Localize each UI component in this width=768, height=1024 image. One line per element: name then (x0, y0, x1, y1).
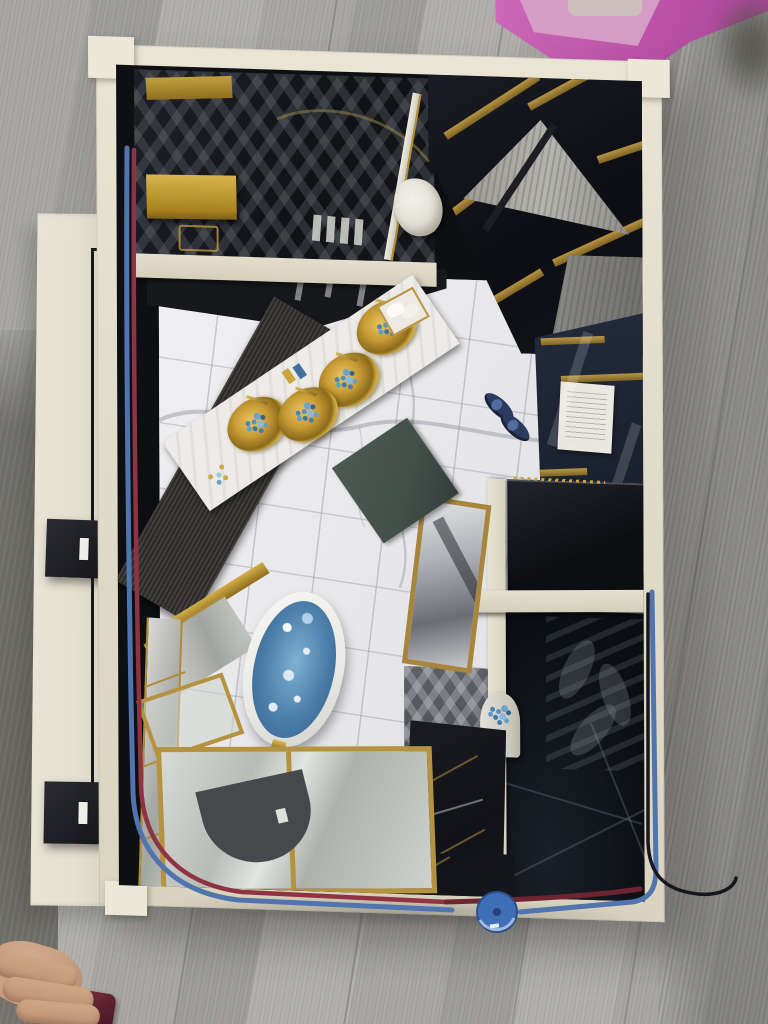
bedroom-dark-floor (504, 609, 645, 902)
blue-crystals (490, 707, 495, 712)
folder-object (568, 0, 642, 16)
gold-stripe (539, 468, 587, 477)
gold-shelf (146, 76, 233, 100)
blue-crystals (376, 323, 383, 330)
gold-stripe (597, 138, 645, 164)
gold-chair-outline (179, 225, 219, 252)
blue-crystals (295, 410, 302, 417)
floor-line (513, 809, 645, 877)
shower-reflection (195, 769, 322, 873)
photo-scene (0, 0, 768, 1024)
transformer-label (78, 802, 87, 824)
dressing-counter (507, 479, 644, 598)
transformer-label (79, 538, 89, 560)
gold-faucet (295, 387, 317, 397)
gold-faucet (246, 395, 268, 405)
jewelry-pieces (207, 473, 214, 480)
leaf-wall-reflection (546, 616, 645, 771)
floor-right-shading (658, 0, 768, 1024)
perfume-bottles (281, 368, 296, 384)
gold-stripe (541, 336, 605, 345)
frame-corner-post (105, 881, 147, 916)
gold-stripe (443, 73, 540, 140)
gold-stripe (527, 67, 598, 111)
shower-enclosure (156, 746, 437, 894)
model-interior (116, 65, 645, 902)
hand (0, 944, 136, 1024)
gold-faucet (336, 352, 358, 362)
miniature-model (96, 44, 665, 922)
gold-bench (146, 174, 237, 219)
floor-line (497, 780, 642, 825)
blue-crystals (334, 376, 341, 383)
blue-crystals (245, 420, 252, 427)
